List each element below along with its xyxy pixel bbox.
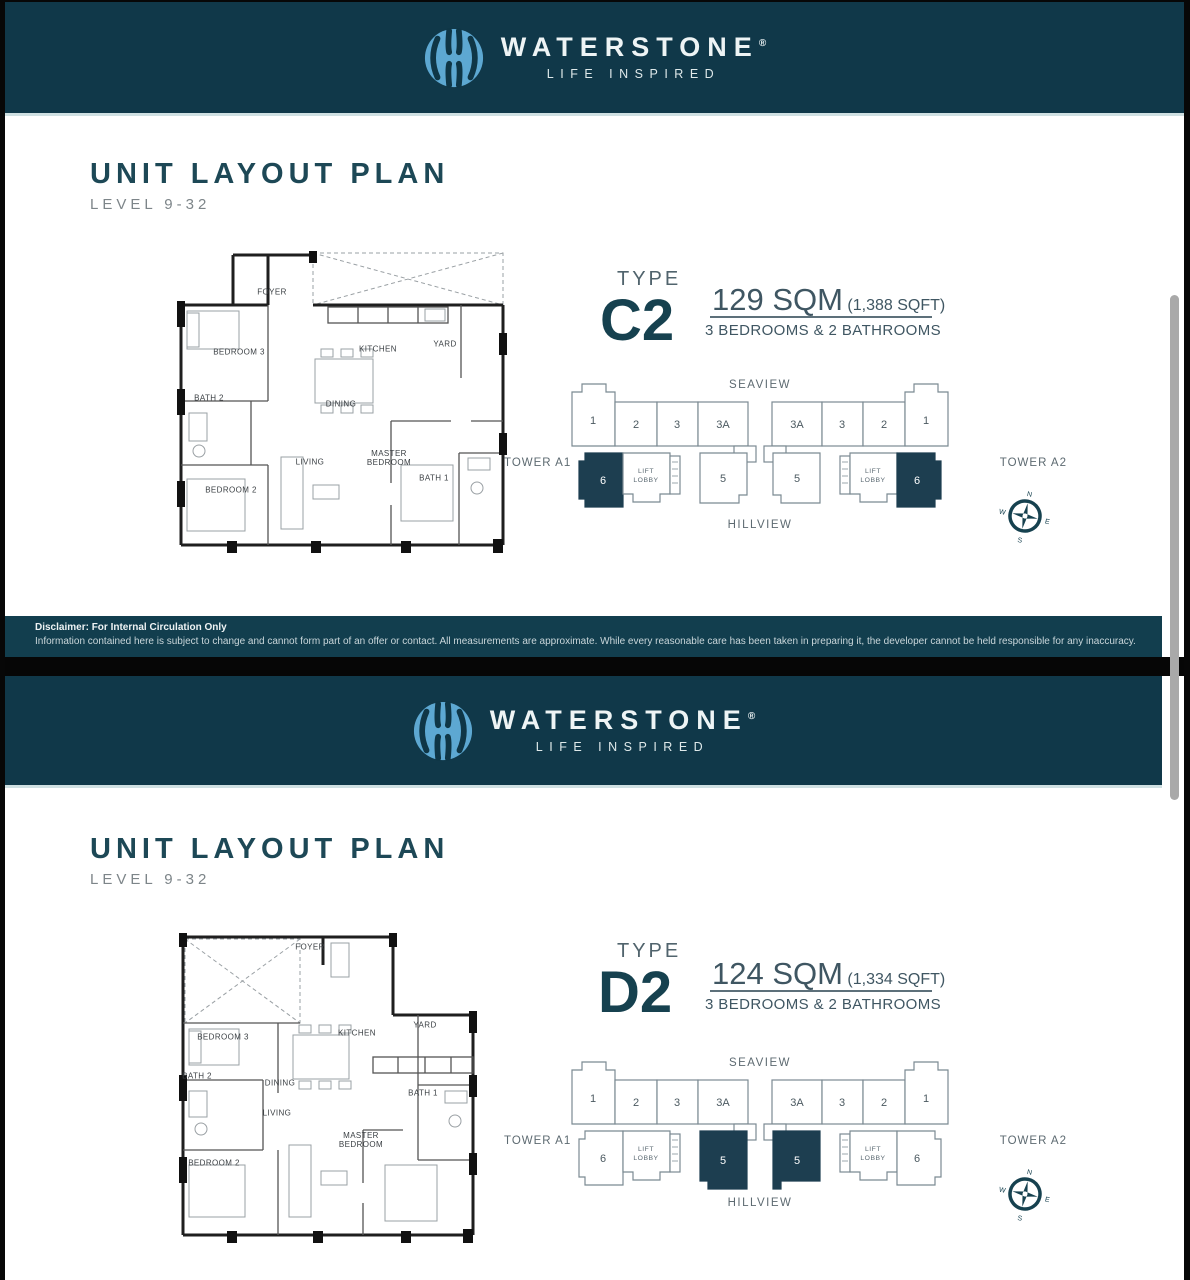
room-label-bedroom2: BEDROOM 2 <box>205 486 257 495</box>
room-label-master-bedroom: MASTER BEDROOM <box>360 449 418 467</box>
hillview-label: HILLVIEW <box>728 1197 793 1209</box>
rooms-line-c2: 3 BEDROOMS & 2 BATHROOMS <box>705 322 941 339</box>
room-label-kitchen: KITCHEN <box>338 1029 376 1038</box>
unit-num-highlighted: 6 <box>600 475 606 487</box>
waterstone-logo-icon <box>412 700 474 762</box>
brand-name: WATERSTONE® <box>501 34 766 61</box>
keyplan-c2-units <box>572 384 948 507</box>
compass-w: W <box>998 509 1006 517</box>
unit-num: 5 <box>720 473 726 485</box>
room-label-dining: DINING <box>326 400 356 409</box>
room-label-living: LIVING <box>296 458 325 467</box>
room-label-kitchen: KITCHEN <box>359 345 397 354</box>
unit-num: 1 <box>590 1093 596 1105</box>
waterstone-logo: WATERSTONE® LIFE INSPIRED <box>412 700 755 762</box>
tower-a1-label: TOWER A1 <box>504 1135 571 1147</box>
page1-header-band: WATERSTONE® LIFE INSPIRED <box>5 2 1184 116</box>
page-title: UNIT LAYOUT PLAN <box>90 835 449 864</box>
disclaimer-band: Disclaimer: For Internal Circulation Onl… <box>5 616 1162 657</box>
page-title: UNIT LAYOUT PLAN <box>90 160 449 189</box>
unit-num: 2 <box>633 419 639 431</box>
area-underline-c2 <box>710 316 932 318</box>
keyplan-d2: SEAVIEW HILLVIEW TOWER A1 TOWER A2 1 2 <box>502 1054 1067 1229</box>
compass-n: N <box>1026 491 1032 499</box>
lift-lobby-label: LOBBY <box>860 477 885 484</box>
compass-w: W <box>998 1187 1006 1195</box>
lift-lobby-label: LIFT <box>865 1146 881 1153</box>
room-label-foyer: FOYER <box>257 288 287 297</box>
room-label-bedroom2: BEDROOM 2 <box>188 1159 240 1168</box>
right-window-edge <box>1184 0 1190 1280</box>
document-viewport: WATERSTONE® LIFE INSPIRED UNIT LAYOUT PL… <box>0 0 1190 1280</box>
scrollbar-thumb[interactable] <box>1170 295 1179 800</box>
page1-title-block: UNIT LAYOUT PLAN LEVEL 9-32 <box>90 160 449 213</box>
waterstone-logo: WATERSTONE® LIFE INSPIRED <box>423 27 766 89</box>
unit-num: 1 <box>590 415 596 427</box>
unit-num-highlighted: 5 <box>794 1155 800 1167</box>
room-label-dining: DINING <box>265 1079 295 1088</box>
unit-num: 6 <box>600 1153 606 1165</box>
waterstone-logo-icon <box>423 27 485 89</box>
lift-lobby-label: LIFT <box>865 468 881 475</box>
registered-mark: ® <box>748 711 755 722</box>
compass-icon: N E S W <box>993 486 1055 550</box>
tower-a1-label: TOWER A1 <box>504 457 571 469</box>
lift-lobby-label: LOBBY <box>860 1155 885 1162</box>
unit-num: 3 <box>839 1097 845 1109</box>
unit-num: 3A <box>716 1097 730 1109</box>
disclaimer-body: Information contained here is subject to… <box>35 636 1162 647</box>
hillview-label: HILLVIEW <box>728 519 793 531</box>
compass-n: N <box>1026 1169 1032 1177</box>
room-label-bedroom3: BEDROOM 3 <box>213 348 265 357</box>
unit-num: 1 <box>923 415 929 427</box>
room-label-yard: YARD <box>413 1021 436 1030</box>
disclaimer-title: Disclaimer: For Internal Circulation Onl… <box>35 622 1162 633</box>
unit-num: 3 <box>839 419 845 431</box>
room-label-bath2: BATH 2 <box>182 1072 212 1081</box>
room-label-bath2: BATH 2 <box>194 394 224 403</box>
compass-icon: N E S W <box>993 1164 1055 1228</box>
unit-num: 3A <box>790 419 804 431</box>
tower-a2-label: TOWER A2 <box>1000 457 1067 469</box>
room-label-bath1: BATH 1 <box>408 1089 438 1098</box>
area-underline-d2 <box>710 990 932 992</box>
compass-s: S <box>1017 537 1023 545</box>
unit-num: 3 <box>674 419 680 431</box>
unit-num: 2 <box>633 1097 639 1109</box>
type-code-d2: D2 <box>598 964 672 1022</box>
room-label-foyer: FOYER <box>295 943 325 952</box>
registered-mark: ® <box>759 38 766 49</box>
area-sqft-d2: (1,334 SQFT) <box>847 971 945 988</box>
unit-num: 6 <box>914 1153 920 1165</box>
unit-num: 5 <box>794 473 800 485</box>
lift-lobby-label: LOBBY <box>633 477 658 484</box>
type-code-c2: C2 <box>600 292 674 350</box>
room-label-bath1: BATH 1 <box>419 474 449 483</box>
page-subtitle: LEVEL 9-32 <box>90 871 449 888</box>
tower-a2-label: TOWER A2 <box>1000 1135 1067 1147</box>
page-subtitle: LEVEL 9-32 <box>90 196 449 213</box>
floorplan-d2-drawing <box>163 925 503 1255</box>
unit-num-highlighted: 6 <box>914 475 920 487</box>
unit-num: 2 <box>881 419 887 431</box>
brand-tagline: LIFE INSPIRED <box>536 740 709 754</box>
lift-lobby-label: LOBBY <box>633 1155 658 1162</box>
compass-e: E <box>1044 518 1050 526</box>
unit-num: 3A <box>716 419 730 431</box>
unit-num-highlighted: 5 <box>720 1155 726 1167</box>
brand-name: WATERSTONE® <box>490 707 755 734</box>
page-gap <box>0 657 1190 676</box>
area-sqft-c2: (1,388 SQFT) <box>847 297 945 314</box>
page2-title-block: UNIT LAYOUT PLAN LEVEL 9-32 <box>90 835 449 888</box>
area-line-d2: 124 SQM (1,334 SQFT) <box>712 956 945 992</box>
area-line-c2: 129 SQM (1,388 SQFT) <box>712 282 945 318</box>
floorplan-c2: FOYER KITCHEN YARD BEDROOM 3 BATH 2 DINI… <box>163 243 518 563</box>
floorplan-d2: FOYER KITCHEN YARD BEDROOM 3 BATH 2 DINI… <box>163 925 503 1255</box>
unit-num: 2 <box>881 1097 887 1109</box>
rooms-line-d2: 3 BEDROOMS & 2 BATHROOMS <box>705 996 941 1013</box>
brand-tagline: LIFE INSPIRED <box>547 67 720 81</box>
lift-lobby-label: LIFT <box>638 1146 654 1153</box>
unit-num: 3 <box>674 1097 680 1109</box>
seaview-label: SEAVIEW <box>729 379 791 391</box>
area-sqm-d2: 124 SQM <box>712 956 843 991</box>
room-label-yard: YARD <box>433 340 456 349</box>
keyplan-d2-units <box>572 1062 948 1189</box>
room-label-living: LIVING <box>263 1109 292 1118</box>
compass-s: S <box>1017 1215 1023 1223</box>
keyplan-c2: SEAVIEW HILLVIEW TOWER A1 TOWER A2 1 2 <box>502 376 1067 551</box>
room-label-master-bedroom: MASTER BEDROOM <box>332 1131 390 1149</box>
page2-header-band: WATERSTONE® LIFE INSPIRED <box>5 676 1162 788</box>
seaview-label: SEAVIEW <box>729 1057 791 1069</box>
unit-num: 3A <box>790 1097 804 1109</box>
lift-lobby-label: LIFT <box>638 468 654 475</box>
compass-e: E <box>1044 1196 1050 1204</box>
left-window-edge <box>0 0 5 1280</box>
area-sqm-c2: 129 SQM <box>712 282 843 317</box>
top-window-edge <box>0 0 1190 2</box>
unit-num: 1 <box>923 1093 929 1105</box>
room-label-bedroom3: BEDROOM 3 <box>197 1033 249 1042</box>
